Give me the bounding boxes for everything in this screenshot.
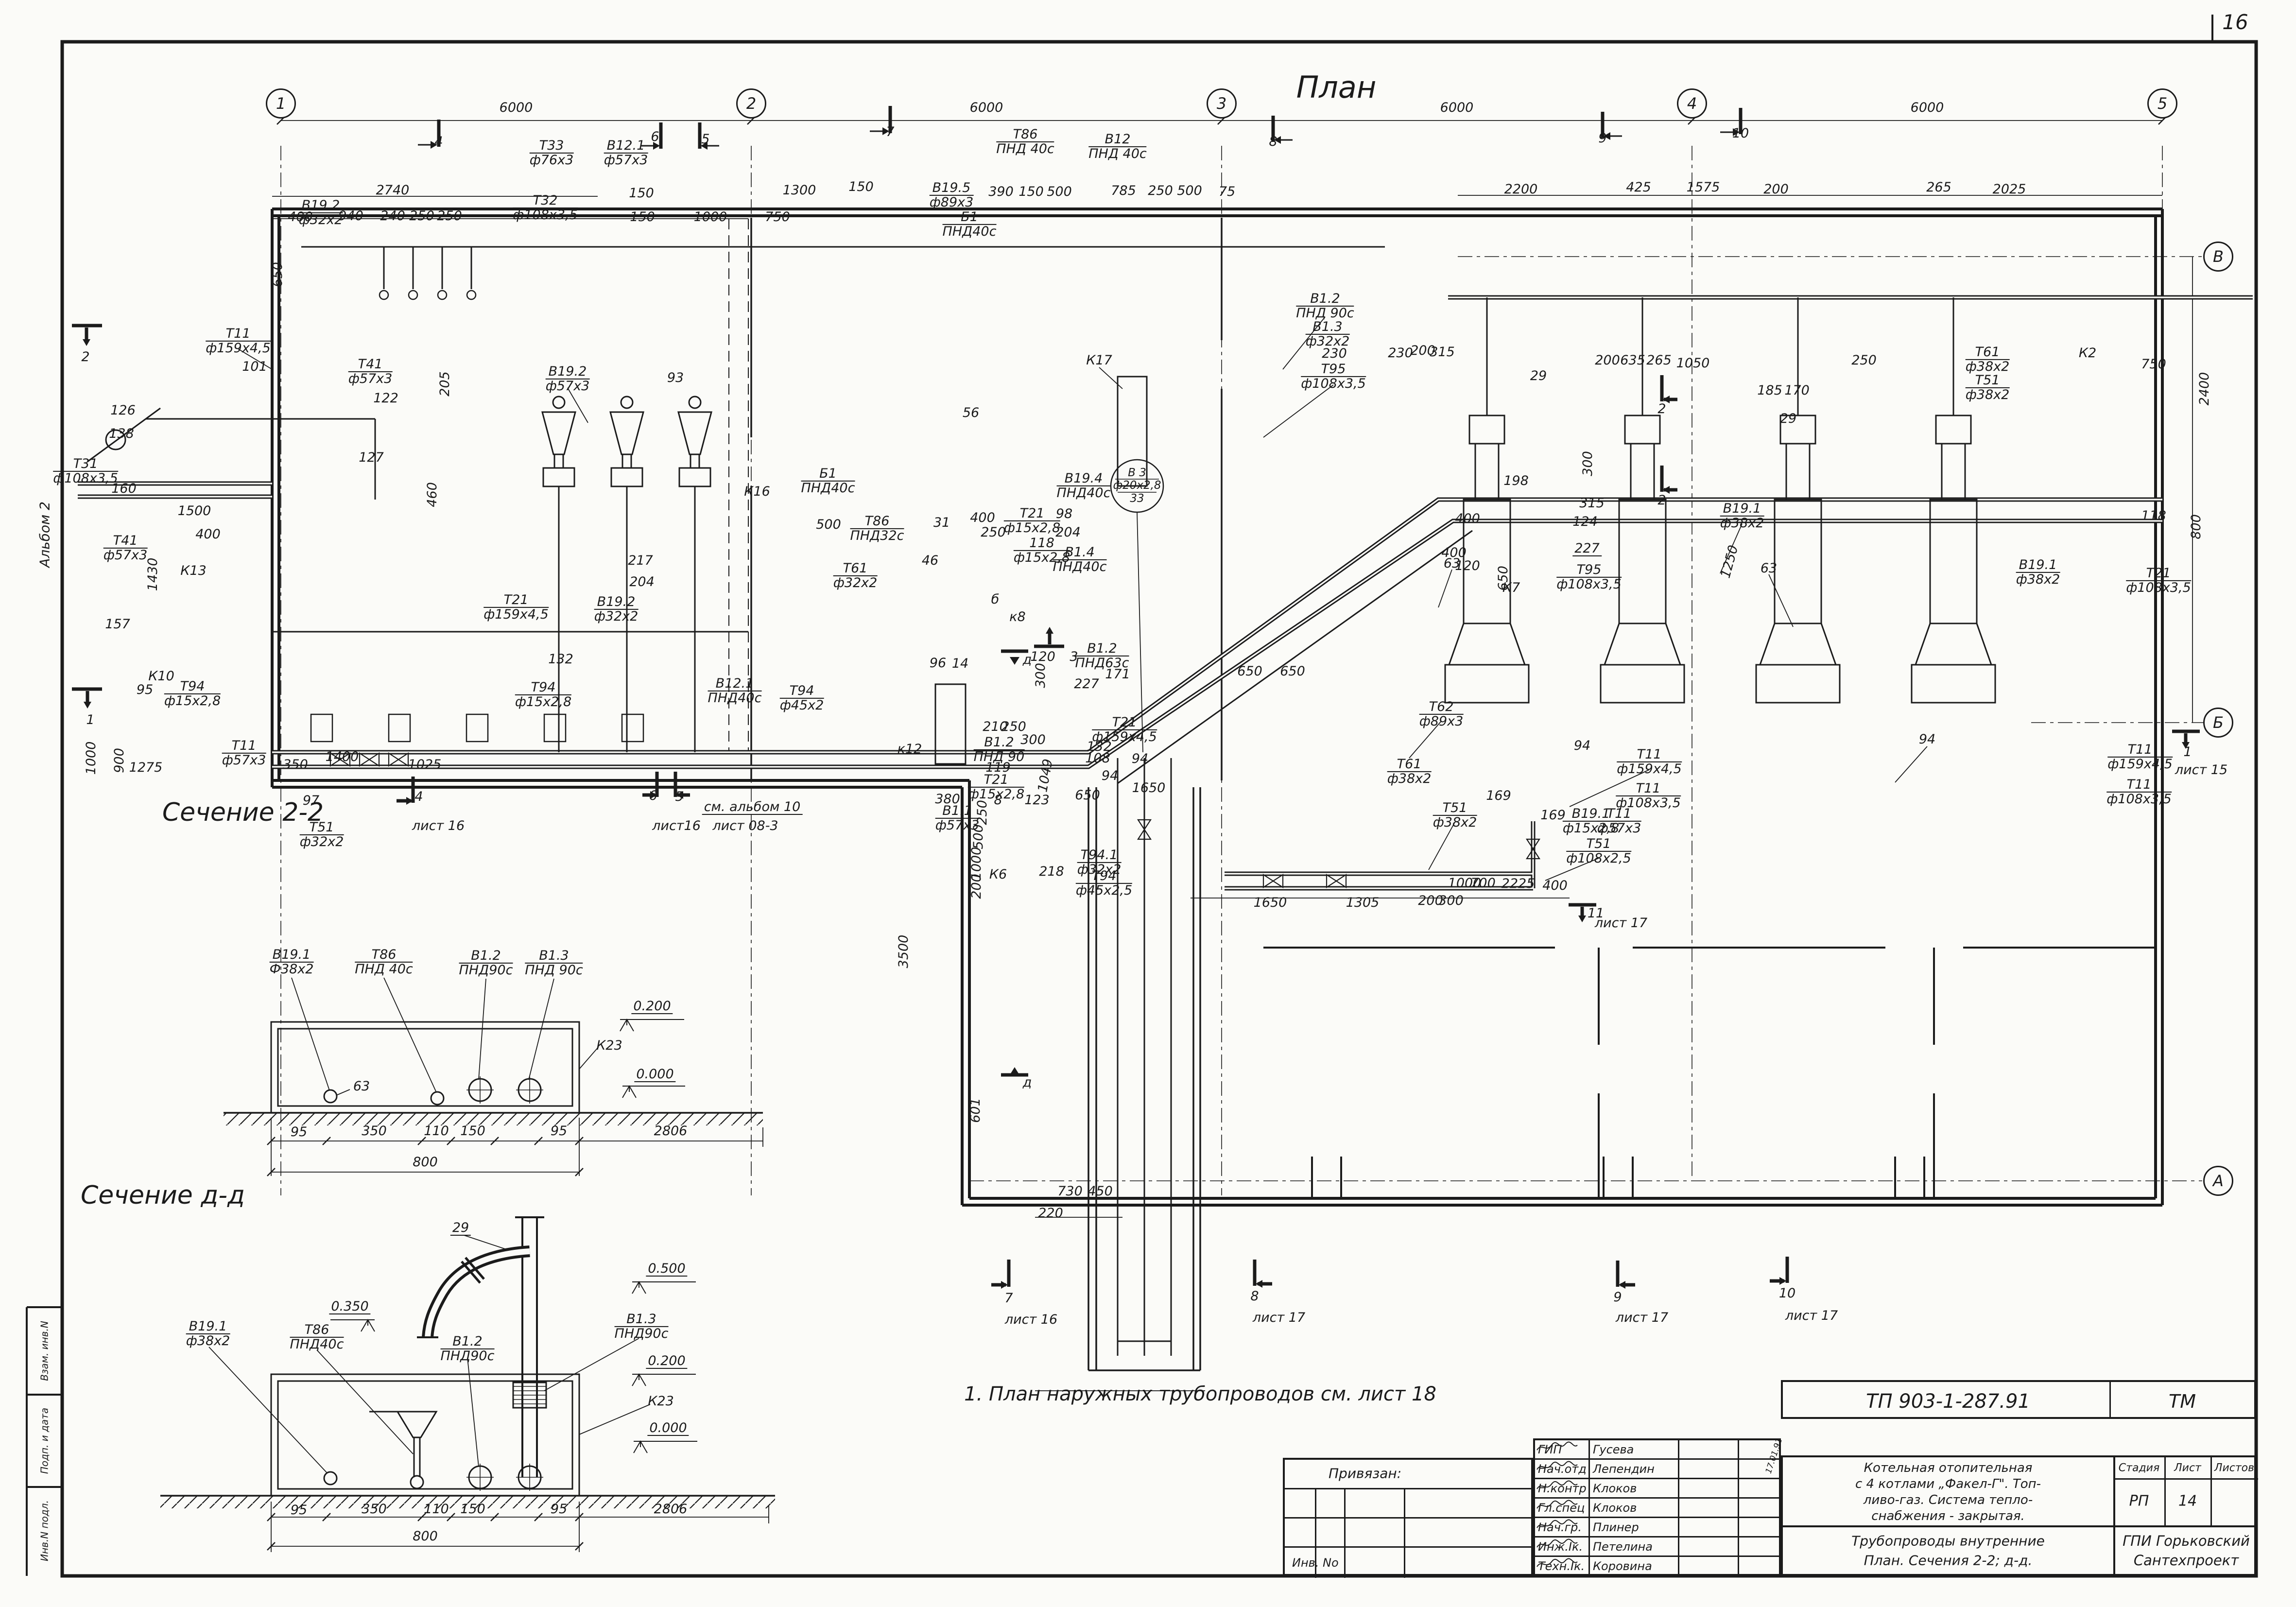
stage-label: Стадия (2119, 1462, 2159, 1474)
signature-name: Лепендин (1590, 1460, 1679, 1479)
axis-marker-col-2: 2 (736, 88, 766, 119)
name-box: Котельная отопительная с 4 котлами „Факе… (1781, 1455, 2256, 1576)
axis-marker-row-Б: Б (2203, 708, 2233, 738)
signature-date-cell (1739, 1557, 1783, 1576)
signature-name: Петелина (1590, 1538, 1679, 1557)
doc-name-line: снабжения - закрытая. (1871, 1509, 2025, 1523)
axis-marker-col-1: 1 (266, 88, 296, 119)
project-code-box: ТП 903-1-287.91 ТМ (1781, 1380, 2256, 1419)
signature-scribble (1679, 1499, 1739, 1518)
axis-marker-col-4: 4 (1677, 88, 1707, 119)
sheet-label: Лист (2174, 1462, 2201, 1474)
signature-row: Инж.Iк.Петелина (1535, 1538, 1783, 1557)
signature-date-cell (1739, 1518, 1783, 1538)
project-code: ТП 903-1-287.91 (1866, 1390, 2030, 1413)
stamp-strip-3: Инв.N подл. (40, 1500, 50, 1561)
sheet-no-value: 14 (2178, 1493, 2197, 1510)
sheets-label: Листов (2214, 1462, 2254, 1474)
signature-name: Клоков (1590, 1499, 1679, 1518)
signature-scribble (1679, 1557, 1739, 1576)
axis-marker-row-А: А (2203, 1166, 2233, 1196)
inventory-label: Инв. No (1292, 1556, 1339, 1570)
attached-label: Привязан: (1329, 1466, 1401, 1482)
stamp-strip-1: Взам. инв.N (40, 1321, 50, 1381)
axis-marker-row-В: В (2203, 242, 2233, 272)
drawing-note: 1. План наружных трубопроводов см. лист … (964, 1384, 1436, 1405)
sheet-name-line: План. Сечения 2-2; д-д. (1864, 1553, 2033, 1569)
stamp-strip-2: Подп. и дата (40, 1408, 50, 1474)
signature-row: ГИПГусева (1535, 1440, 1783, 1460)
project-suffix: ТМ (2169, 1391, 2196, 1412)
signature-row: Нач.гр.Плинер (1535, 1518, 1783, 1538)
org-line: Сантехпроект (2134, 1552, 2239, 1569)
signature-scribble (1679, 1538, 1739, 1557)
album-label: Альбом 2 (37, 501, 52, 568)
signature-row: Гл.спецКлоков (1535, 1499, 1783, 1518)
doc-name-line: ливо-газ. Система тепло- (1864, 1493, 2033, 1507)
signature-row: Нач.отдЛепендин (1535, 1460, 1783, 1479)
axis-marker-col-3: 3 (1207, 88, 1237, 119)
signature-row: Техн.Iк.Коровина (1535, 1557, 1783, 1576)
stage-value: РП (2129, 1493, 2149, 1510)
signature-name: Клоков (1590, 1479, 1679, 1499)
signature-name: Плинер (1590, 1518, 1679, 1538)
drawing-sheet: 600060006000600047891065Т33ф76х3В12.1ф57… (0, 0, 2296, 1607)
signature-date-cell (1739, 1479, 1783, 1499)
org-line: ГПИ Горьковский (2123, 1533, 2250, 1549)
signature-scribble (1679, 1460, 1739, 1479)
doc-name-line: с 4 котлами „Факел-Г". Топ- (1855, 1477, 2041, 1491)
doc-name-line: Котельная отопительная (1864, 1461, 2033, 1475)
signature-scribble (1679, 1479, 1739, 1499)
signature-row: Н.контрКлоков (1535, 1479, 1783, 1499)
signature-block: ГИПГусеваНач.отдЛепендинН.контрКлоковГл.… (1533, 1438, 1781, 1576)
plan-title: План (1296, 72, 1377, 103)
attachment-box: Привязан: Инв. No (1283, 1458, 1533, 1576)
sheet-name-line: Трубопроводы внутренние (1851, 1533, 2045, 1549)
signature-scribble (1679, 1440, 1739, 1460)
signature-scribble (1679, 1518, 1739, 1538)
sheet-number: 16 (2222, 12, 2248, 33)
signature-name: Коровина (1590, 1557, 1679, 1576)
axis-marker-col-5: 5 (2147, 88, 2177, 119)
signature-date-cell (1739, 1538, 1783, 1557)
signature-date-cell (1739, 1499, 1783, 1518)
axis-markers-layer: 12345ВБА (0, 0, 2296, 1607)
signature-name: Гусева (1590, 1440, 1679, 1460)
